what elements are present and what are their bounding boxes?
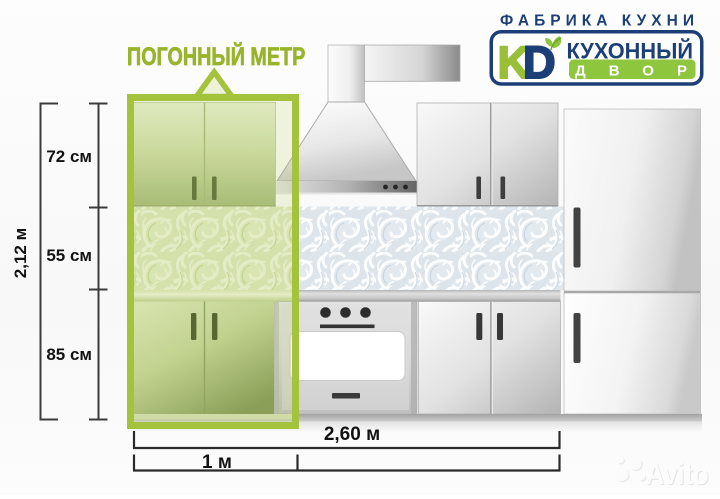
svg-text:ФАБРИКА КУХНИ: ФАБРИКА КУХНИ: [500, 13, 698, 30]
svg-text:Avito: Avito: [646, 458, 709, 491]
